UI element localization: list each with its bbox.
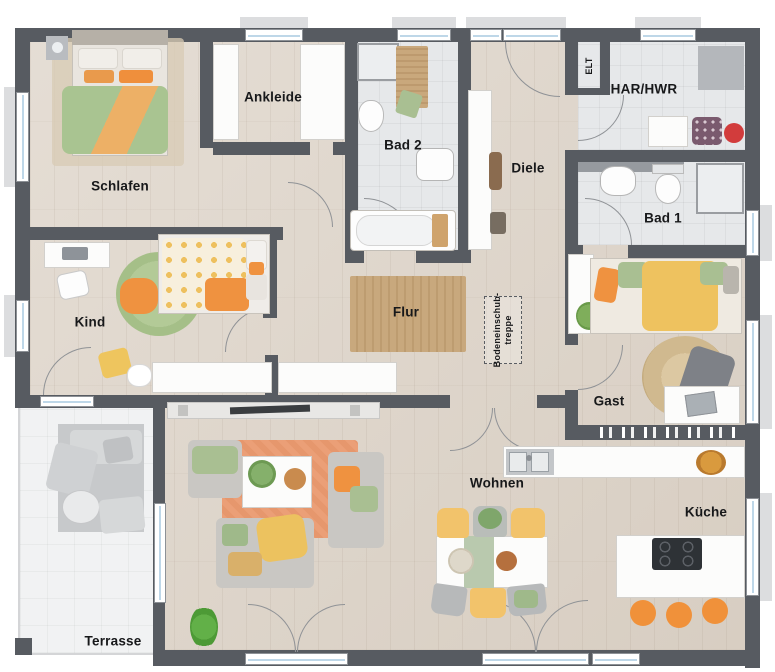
washing-machine <box>648 116 688 147</box>
room-label-bad1: Bad 1 <box>644 211 682 226</box>
window-kueche <box>746 498 759 596</box>
terrace-pillow <box>102 436 134 464</box>
room-label-elt: ELT <box>584 57 594 74</box>
wardrobe-left <box>213 44 239 140</box>
dining-chair-gray <box>430 583 468 617</box>
bath-caddy <box>432 214 448 247</box>
sink-bad1 <box>600 166 636 196</box>
bed-cushion-orange <box>84 70 114 83</box>
bed-headboard <box>72 30 168 45</box>
terrace-door-wohnen <box>245 653 348 665</box>
wall-bad1-bottom-b <box>628 245 760 258</box>
window-ankleide <box>245 29 303 41</box>
wall-art-circle <box>52 42 63 53</box>
window-bad1 <box>746 210 759 256</box>
red-bucket <box>724 123 744 143</box>
room-label-bad2: Bad 2 <box>384 138 422 153</box>
coffee-table-plant <box>248 460 276 488</box>
dining-chair-yellow <box>511 508 545 538</box>
room-label-wohnen: Wohnen <box>470 476 524 491</box>
wall-elt-right <box>600 42 610 95</box>
kids-pillow-orange <box>249 262 264 275</box>
books-on-wall <box>600 427 740 438</box>
chaise-throw-green <box>192 446 238 474</box>
garden-door-wohnen <box>482 653 589 665</box>
window-entry-side <box>470 29 502 41</box>
toilet-bad1-bowl <box>655 174 681 204</box>
kitchen-faucet <box>526 455 532 461</box>
kids-pillow <box>246 274 267 300</box>
cooktop <box>652 538 702 570</box>
wall-bad2-bottom-b <box>416 250 471 263</box>
laundry-basket <box>692 117 722 145</box>
wall-schlafen-ankleide <box>200 42 213 148</box>
kids-wardrobe <box>152 362 272 393</box>
table-flowers <box>448 548 474 574</box>
wall-har-bottom <box>565 150 760 162</box>
hall-sideboard <box>278 362 397 393</box>
speaker <box>350 405 360 416</box>
terrace-corner-post <box>15 638 32 655</box>
window-sill <box>760 205 772 261</box>
shower-bad2 <box>357 43 399 81</box>
sofa-throw-yellow <box>255 513 309 563</box>
room-label-har-hwr: HAR/HWR <box>611 82 678 97</box>
window-kind <box>16 300 29 352</box>
armchair-pillow-green <box>350 486 378 512</box>
toilet-bad2 <box>358 100 384 132</box>
kitchen-sink-basin <box>531 452 549 472</box>
room-label-kueche: Küche <box>685 505 727 520</box>
terrace-sofa-2 <box>98 496 145 534</box>
dining-chair-green-throw <box>514 590 538 608</box>
wardrobe-right <box>300 44 345 140</box>
sofa-pillow-green <box>222 524 248 546</box>
sink-bad2 <box>416 148 454 181</box>
terrace-table <box>62 490 100 524</box>
speaker <box>178 405 188 416</box>
wall-bad1-left <box>565 162 578 245</box>
dining-chair-yellow <box>470 588 506 618</box>
entry-door-leaf <box>503 29 561 41</box>
coffee-table-tray <box>284 468 306 490</box>
room-label-terrasse: Terrasse <box>85 634 142 649</box>
floor-plan: Schlafen Ankleide Bad 2 Diele ELT HAR/HW… <box>0 0 775 672</box>
room-label-kind: Kind <box>75 315 106 330</box>
gast-pillow-gray <box>723 266 739 294</box>
window-har-hwr <box>640 29 696 41</box>
bed-pillow <box>122 48 162 69</box>
table-bowl <box>496 551 517 571</box>
wall-diele-elt <box>565 42 578 95</box>
fern-plant <box>190 606 218 648</box>
window-wohnen-terrace <box>154 503 166 603</box>
coat-bag <box>489 152 502 190</box>
window-bottom-fixed <box>592 653 640 665</box>
wall-elt-bottom <box>578 88 600 95</box>
room-label-schlafen: Schlafen <box>91 179 149 194</box>
bar-stool <box>630 600 656 626</box>
room-label-ankleide: Ankleide <box>244 90 302 105</box>
window-gast <box>746 320 759 424</box>
window-bad2 <box>397 29 451 41</box>
shower-bad1 <box>696 163 744 214</box>
bed-cushion-orange <box>119 70 153 83</box>
wall-ankleide-bottom <box>213 142 310 155</box>
fruit-bowl <box>696 450 726 475</box>
bar-stool <box>666 602 692 628</box>
sofa-pillow-gold <box>228 552 262 576</box>
room-label-flur: Flur <box>393 305 419 320</box>
shoes <box>490 212 506 234</box>
room-label-diele: Diele <box>511 161 544 176</box>
kids-laptop <box>62 247 88 260</box>
bar-stool <box>702 598 728 624</box>
bed-duvet <box>62 86 168 154</box>
window-sill <box>760 493 772 601</box>
bathtub-inner <box>356 215 436 246</box>
window-schlafen <box>16 92 29 182</box>
flower-side-table <box>127 364 152 387</box>
terrace-door-kind <box>40 396 94 407</box>
bed-pillow <box>78 48 118 69</box>
har-cabinet <box>698 46 744 90</box>
label-attic-stairs: Bodeneinschub- treppe <box>492 293 515 368</box>
dining-chair-yellow <box>437 508 469 538</box>
gast-laptop <box>685 391 718 417</box>
dining-chair-plant-accent <box>478 508 502 529</box>
kids-beanbag <box>120 278 158 314</box>
kids-blanket-orange <box>205 278 249 311</box>
window-sill <box>760 315 772 429</box>
toilet-bad1 <box>652 164 684 174</box>
kitchen-sink-basin <box>509 452 527 472</box>
wall-bad2-bottom-a <box>345 250 364 263</box>
room-label-gast: Gast <box>594 394 625 409</box>
